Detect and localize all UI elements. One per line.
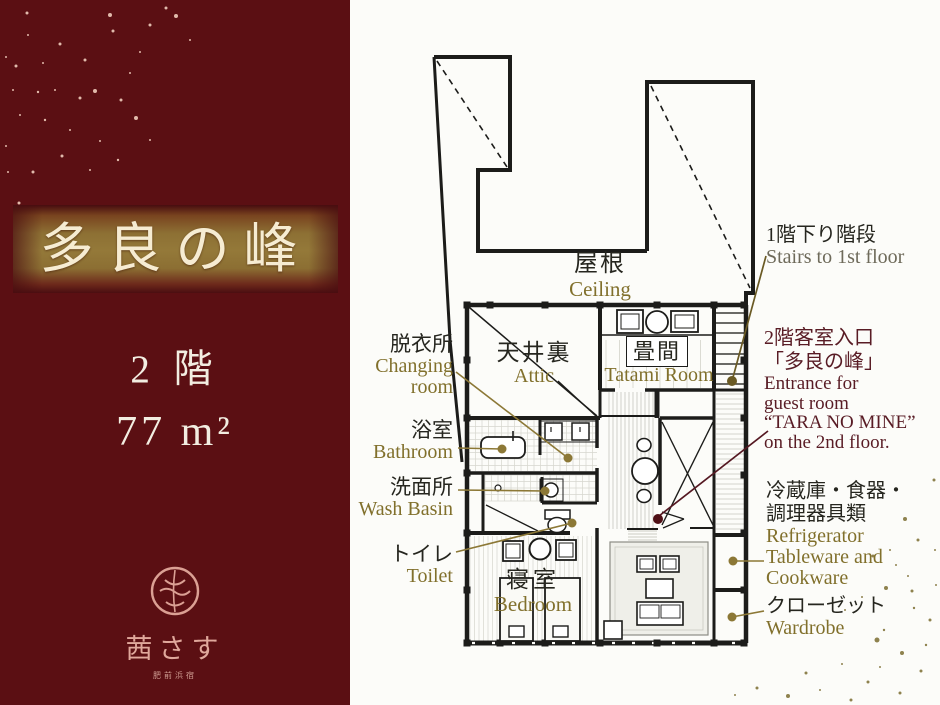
label-attic: 天井裏 Attic	[478, 341, 590, 387]
label-roof-en: Ceiling	[540, 278, 660, 301]
label-stairs-jp: 1階下り階段	[766, 225, 904, 247]
label-changing: 脱衣所 Changing room	[333, 333, 453, 399]
room-title: 多良の峰	[13, 205, 338, 293]
label-entrance-en: Entrance for guest room “TARA NO MINE” o…	[764, 374, 916, 452]
label-tatami-jp: 畳間	[626, 336, 688, 367]
label-washbasin-en: Wash Basin	[323, 499, 453, 521]
label-stairs: 1階下り階段 Stairs to 1st floor	[766, 225, 904, 268]
label-kitchenware-en: Refrigerator Tableware and Cookware	[766, 526, 906, 589]
room-title-band: 多良の峰	[13, 205, 338, 293]
label-toilet: トイレ Toilet	[333, 543, 453, 587]
staircase	[716, 313, 744, 529]
label-bathroom-en: Bathroom	[333, 442, 453, 464]
label-roof-jp: 屋根	[540, 252, 660, 278]
label-bathroom: 浴室 Bathroom	[333, 419, 453, 463]
label-bathroom-jp: 浴室	[333, 419, 453, 442]
label-entrance-jp1: 2階客室入口	[764, 327, 916, 350]
label-bedroom-en: Bedroom	[477, 593, 589, 616]
label-entrance: 2階客室入口 「多良の峰」 Entrance for guest room “T…	[764, 327, 916, 452]
label-toilet-jp: トイレ	[333, 543, 453, 566]
label-entrance-jp2: 「多良の峰」	[764, 350, 916, 374]
label-wardrobe: クローゼット Wardrobe	[766, 596, 886, 639]
label-kitchenware: 冷蔵庫・食器・ 調理器具類 Refrigerator Tableware and…	[766, 480, 906, 589]
label-attic-jp: 天井裏	[478, 341, 590, 366]
label-bedroom: 寝室 Bedroom	[477, 568, 589, 616]
label-wardrobe-en: Wardrobe	[766, 618, 886, 640]
label-roof: 屋根 Ceiling	[540, 252, 660, 301]
label-changing-en: Changing room	[333, 356, 453, 399]
label-stairs-en: Stairs to 1st floor	[766, 247, 904, 269]
label-tatami-en: Tatami Room	[598, 365, 720, 387]
label-bedroom-jp: 寝室	[477, 568, 589, 593]
label-attic-en: Attic	[478, 366, 590, 388]
label-toilet-en: Toilet	[333, 566, 453, 588]
label-changing-jp: 脱衣所	[333, 333, 453, 356]
label-washbasin: 洗面所 Wash Basin	[323, 476, 453, 520]
label-wardrobe-jp: クローゼット	[766, 596, 886, 618]
label-washbasin-jp: 洗面所	[323, 476, 453, 499]
label-kitchenware-jp: 冷蔵庫・食器・ 調理器具類	[766, 480, 906, 526]
